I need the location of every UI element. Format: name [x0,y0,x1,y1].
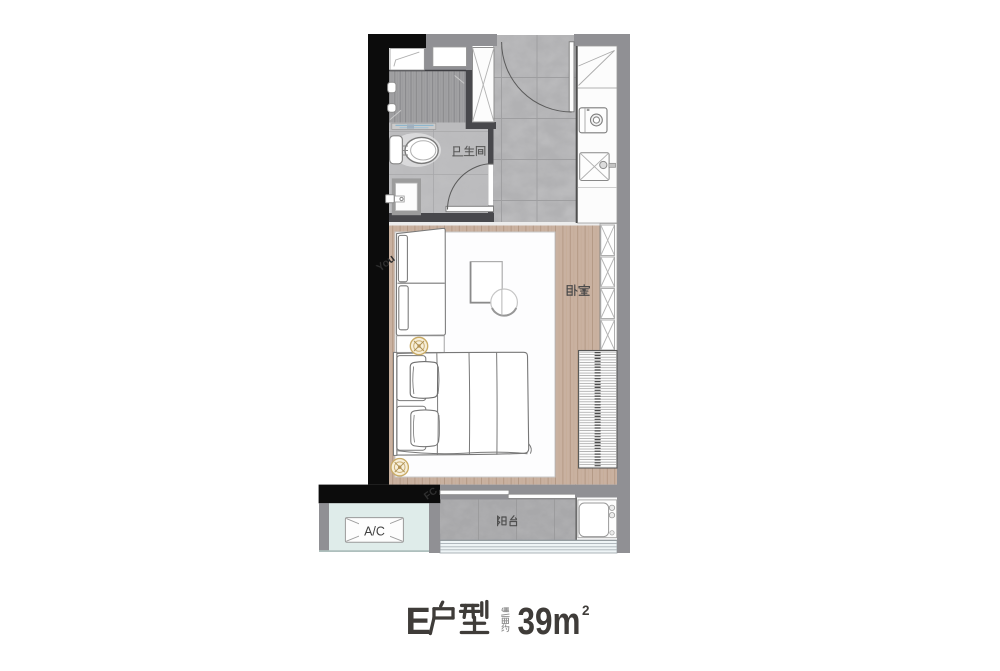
svg-text:E: E [406,601,431,643]
svg-text:A/C: A/C [364,525,385,539]
svg-text:39m: 39m [518,601,581,643]
svg-text:2: 2 [582,603,590,618]
